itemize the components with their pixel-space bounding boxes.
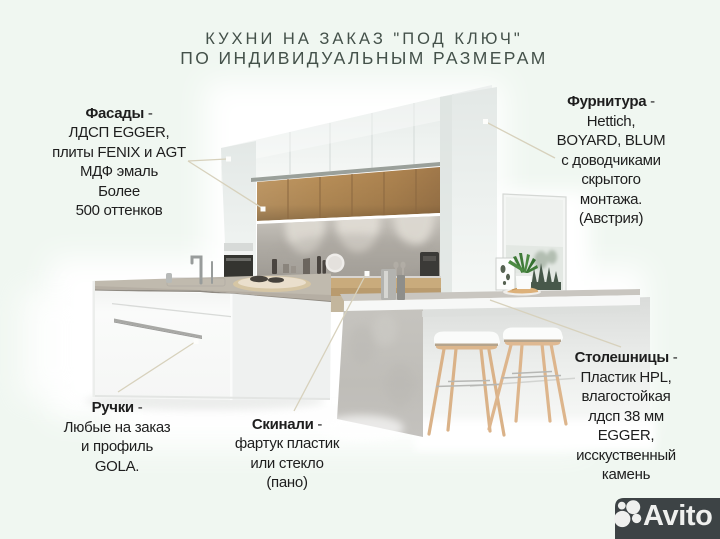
svg-text:Avito: Avito [643,500,712,532]
